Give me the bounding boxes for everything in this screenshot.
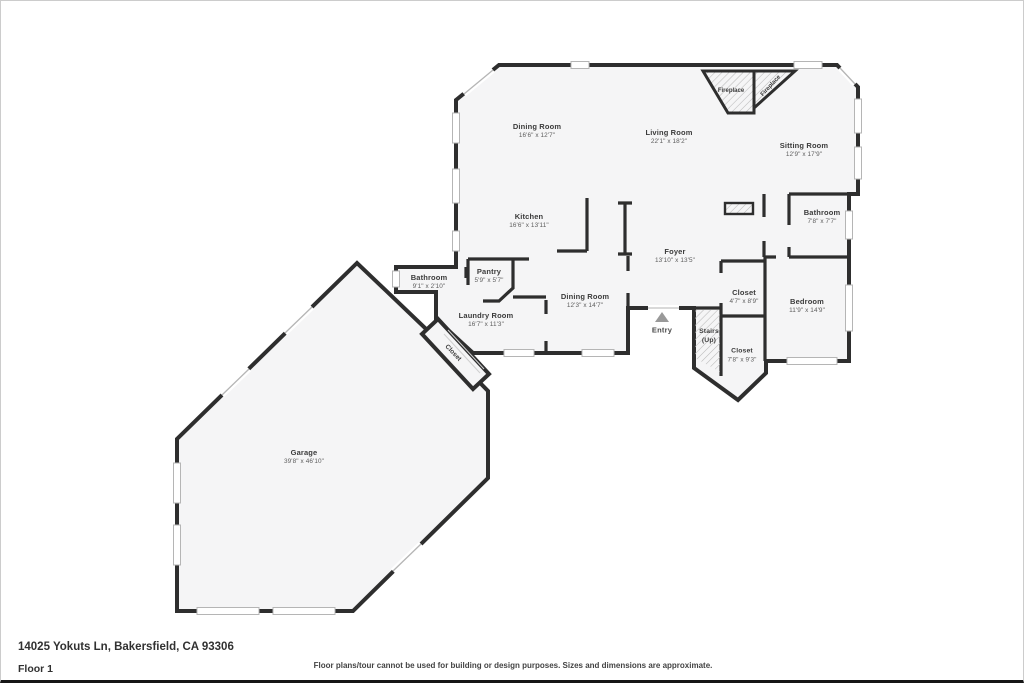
- room-label-kitchen: Kitchen 16'6" x 13'11": [509, 212, 549, 230]
- room-label-garage: Garage 39'8" x 46'10": [284, 448, 324, 466]
- room-label-closet-2: Closet 7'8" x 9'3": [727, 347, 756, 364]
- disclaimer-text: Floor plans/tour cannot be used for buil…: [314, 661, 713, 670]
- room-label-stairs: Stairs (Up): [699, 328, 719, 346]
- room-label-dining-room-2: Dining Room 12'3" x 14'7": [561, 292, 609, 310]
- fireplace-label: Fireplace: [718, 88, 744, 94]
- room-label-bedroom: Bedroom 11'9" x 14'9": [789, 297, 825, 315]
- house-footprint: [177, 65, 858, 611]
- property-address: 14025 Yokuts Ln, Bakersfield, CA 93306: [18, 641, 234, 653]
- room-label-dining-room-1: Dining Room 16'6" x 12'7": [513, 122, 561, 140]
- room-label-laundry-room: Laundry Room 16'7" x 11'3": [459, 311, 514, 329]
- floor-plan-drawing: [1, 1, 1024, 683]
- hearth: [725, 203, 753, 214]
- floor-number-label: Floor 1: [18, 663, 53, 675]
- room-label-foyer: Foyer 13'10" x 13'5": [655, 247, 695, 265]
- entry-label: Entry: [652, 326, 672, 335]
- floor-plan-page: Dining Room 16'6" x 12'7" Living Room 22…: [0, 0, 1024, 683]
- room-label-pantry: Pantry 5'9" x 5'7": [474, 267, 503, 285]
- room-label-sitting-room: Sitting Room 12'9" x 17'9": [780, 141, 828, 159]
- entry-direction-icon: [655, 312, 669, 322]
- room-label-closet-1: Closet 4'7" x 8'9": [729, 288, 758, 306]
- room-label-bathroom-left: Bathroom 9'1" x 2'10": [411, 273, 448, 291]
- room-label-bathroom-upper: Bathroom 7'8" x 7'7": [804, 208, 841, 226]
- room-label-living-room: Living Room 22'1" x 18'2": [645, 128, 692, 146]
